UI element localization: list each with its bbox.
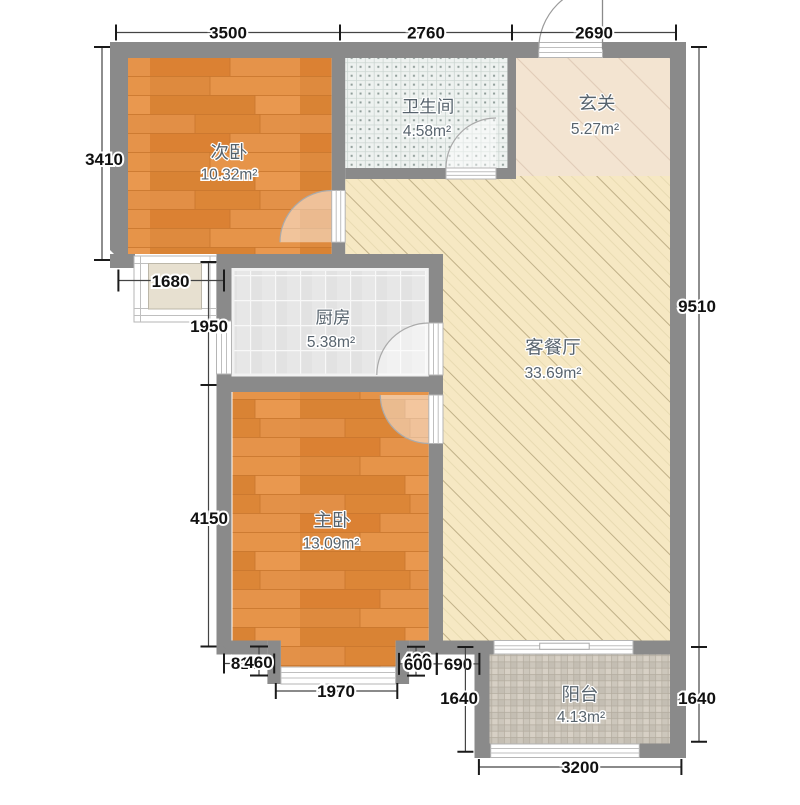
svg-text:4.13m²: 4.13m² (557, 709, 605, 726)
svg-text:3200: 3200 (561, 758, 599, 777)
svg-text:1970: 1970 (317, 682, 355, 701)
svg-text:690: 690 (444, 655, 472, 674)
svg-text:2690: 2690 (575, 24, 613, 43)
svg-text:1680: 1680 (152, 272, 190, 291)
svg-text:4.58m²: 4.58m² (403, 123, 451, 140)
svg-text:1950: 1950 (190, 317, 228, 336)
svg-text:3500: 3500 (209, 24, 247, 43)
svg-text:33.69m²: 33.69m² (525, 365, 582, 382)
svg-text:5.38m²: 5.38m² (307, 334, 355, 351)
svg-text:9510: 9510 (678, 297, 716, 316)
svg-text:4150: 4150 (190, 509, 228, 528)
svg-text:600: 600 (404, 655, 432, 674)
svg-text:2760: 2760 (407, 24, 445, 43)
svg-text:1640: 1640 (678, 689, 716, 708)
svg-text:3410: 3410 (85, 150, 123, 169)
svg-text:13.09m²: 13.09m² (303, 536, 360, 553)
svg-text:460: 460 (244, 653, 272, 672)
svg-text:1640: 1640 (440, 689, 478, 708)
svg-text:10.32m²: 10.32m² (201, 167, 258, 184)
svg-text:5.27m²: 5.27m² (571, 121, 619, 138)
